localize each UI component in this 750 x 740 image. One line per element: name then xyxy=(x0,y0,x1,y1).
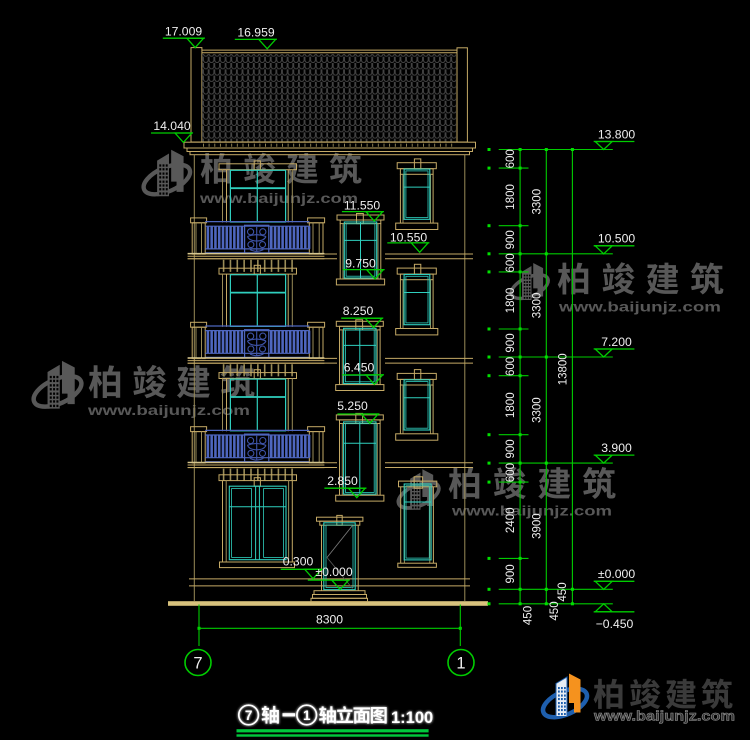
svg-text:10.550: 10.550 xyxy=(390,231,427,245)
svg-text:14.040: 14.040 xyxy=(153,119,190,133)
svg-text:16.959: 16.959 xyxy=(237,26,274,40)
svg-text:1: 1 xyxy=(303,708,311,723)
svg-text:600: 600 xyxy=(505,463,517,482)
svg-text:1800: 1800 xyxy=(505,392,517,418)
svg-text:3300: 3300 xyxy=(532,189,544,215)
svg-text:3900: 3900 xyxy=(532,513,544,539)
svg-text:0.300: 0.300 xyxy=(283,555,314,569)
svg-text:11.550: 11.550 xyxy=(344,199,381,213)
svg-text:www.baijunjz.com: www.baijunjz.com xyxy=(593,709,735,724)
svg-text:450: 450 xyxy=(523,606,535,625)
svg-text:7.200: 7.200 xyxy=(601,335,632,349)
svg-text:450: 450 xyxy=(549,601,561,620)
svg-text:900: 900 xyxy=(505,333,517,352)
svg-text:8300: 8300 xyxy=(316,613,343,627)
svg-text:3300: 3300 xyxy=(532,293,544,319)
svg-text:7: 7 xyxy=(245,708,253,723)
svg-text:600: 600 xyxy=(505,149,517,168)
svg-text:3.900: 3.900 xyxy=(601,441,632,455)
svg-text:1: 1 xyxy=(456,655,465,673)
svg-text:6.450: 6.450 xyxy=(344,361,375,375)
svg-text:2.850: 2.850 xyxy=(327,474,358,488)
svg-text:10.500: 10.500 xyxy=(598,232,635,246)
svg-text:1800: 1800 xyxy=(505,184,517,210)
svg-text:600: 600 xyxy=(505,253,517,272)
svg-text:900: 900 xyxy=(505,230,517,249)
svg-text:450: 450 xyxy=(557,582,569,601)
svg-text:1:100: 1:100 xyxy=(391,709,433,727)
svg-text:3300: 3300 xyxy=(532,397,544,423)
svg-text:13800: 13800 xyxy=(558,353,570,385)
svg-text:8.250: 8.250 xyxy=(343,304,374,318)
svg-text:900: 900 xyxy=(505,439,517,458)
svg-text:13.800: 13.800 xyxy=(598,127,635,141)
svg-text:±0.000: ±0.000 xyxy=(598,567,635,581)
svg-text:900: 900 xyxy=(505,564,517,583)
svg-text:www.baijunjz.com: www.baijunjz.com xyxy=(87,402,250,418)
svg-text:1800: 1800 xyxy=(505,288,517,314)
svg-text:9.750: 9.750 xyxy=(345,257,376,271)
svg-text:7: 7 xyxy=(193,655,202,673)
svg-text:600: 600 xyxy=(505,357,517,376)
svg-text:−0.450: −0.450 xyxy=(596,617,634,631)
svg-text:5.250: 5.250 xyxy=(337,399,368,413)
svg-text:www.baijunjz.com: www.baijunjz.com xyxy=(558,299,721,315)
svg-text:±0.000: ±0.000 xyxy=(315,565,352,579)
svg-text:17.009: 17.009 xyxy=(165,25,202,39)
svg-text:2400: 2400 xyxy=(505,508,517,534)
